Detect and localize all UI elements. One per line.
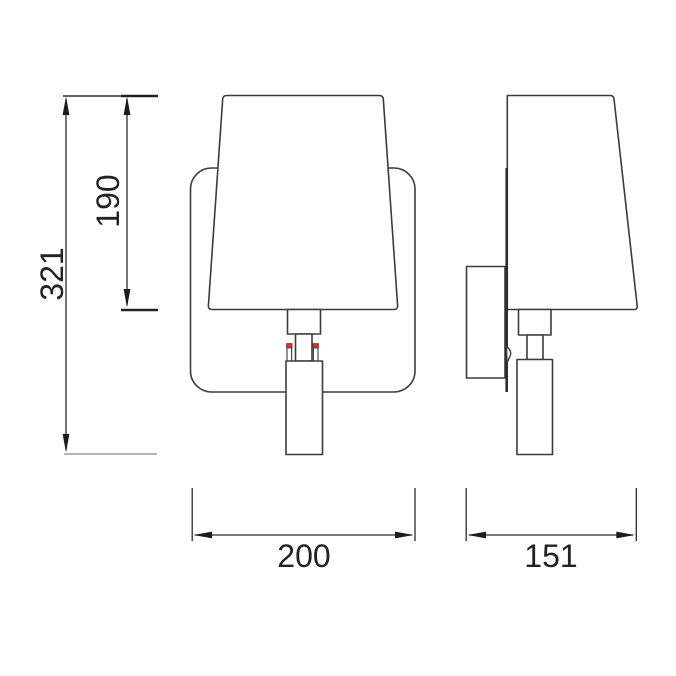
pin-tip-red-right (313, 344, 318, 348)
side-view (467, 96, 638, 455)
dim-overall-height: 321 (34, 96, 158, 454)
arrowhead-up-190 (124, 97, 131, 116)
socket-holder-side (519, 310, 552, 336)
mount-clip-side (507, 347, 511, 364)
technical-drawing-page: 321 190 200 151 (0, 0, 676, 676)
lampshade-front (208, 96, 397, 310)
pin-tip-red-left (287, 344, 292, 348)
candle-pin-left (287, 344, 292, 362)
arrowhead-down-190 (124, 289, 131, 308)
stem-front (296, 334, 313, 361)
wall-mount-box-side (467, 267, 506, 379)
arrowhead-right-151 (616, 532, 635, 539)
arrowhead-left-151 (468, 532, 487, 539)
dim-depth: 151 (466, 488, 636, 574)
lampshade-side (507, 96, 637, 310)
arrowhead-up-321 (63, 97, 70, 116)
candle-pin-right (313, 344, 318, 362)
pin-shaft-right (313, 347, 318, 362)
dim-label-overall-height: 321 (34, 247, 70, 300)
dim-label-width: 200 (277, 538, 330, 574)
front-view (191, 96, 416, 455)
stem-side (527, 335, 543, 360)
arrowhead-left-200 (194, 532, 213, 539)
lamp-body-side (517, 360, 553, 455)
dim-width: 200 (192, 488, 415, 574)
wall-lamp-dimension-drawing: 321 190 200 151 (0, 0, 676, 676)
pin-shaft-left (287, 347, 292, 362)
lamp-body-front (286, 361, 323, 455)
arrowhead-down-321 (63, 434, 70, 453)
dim-shade-height: 190 (90, 96, 158, 310)
arrowhead-right-200 (395, 532, 414, 539)
dim-label-shade-height: 190 (90, 174, 126, 227)
dim-label-depth: 151 (524, 538, 577, 574)
socket-holder-front (288, 310, 321, 335)
